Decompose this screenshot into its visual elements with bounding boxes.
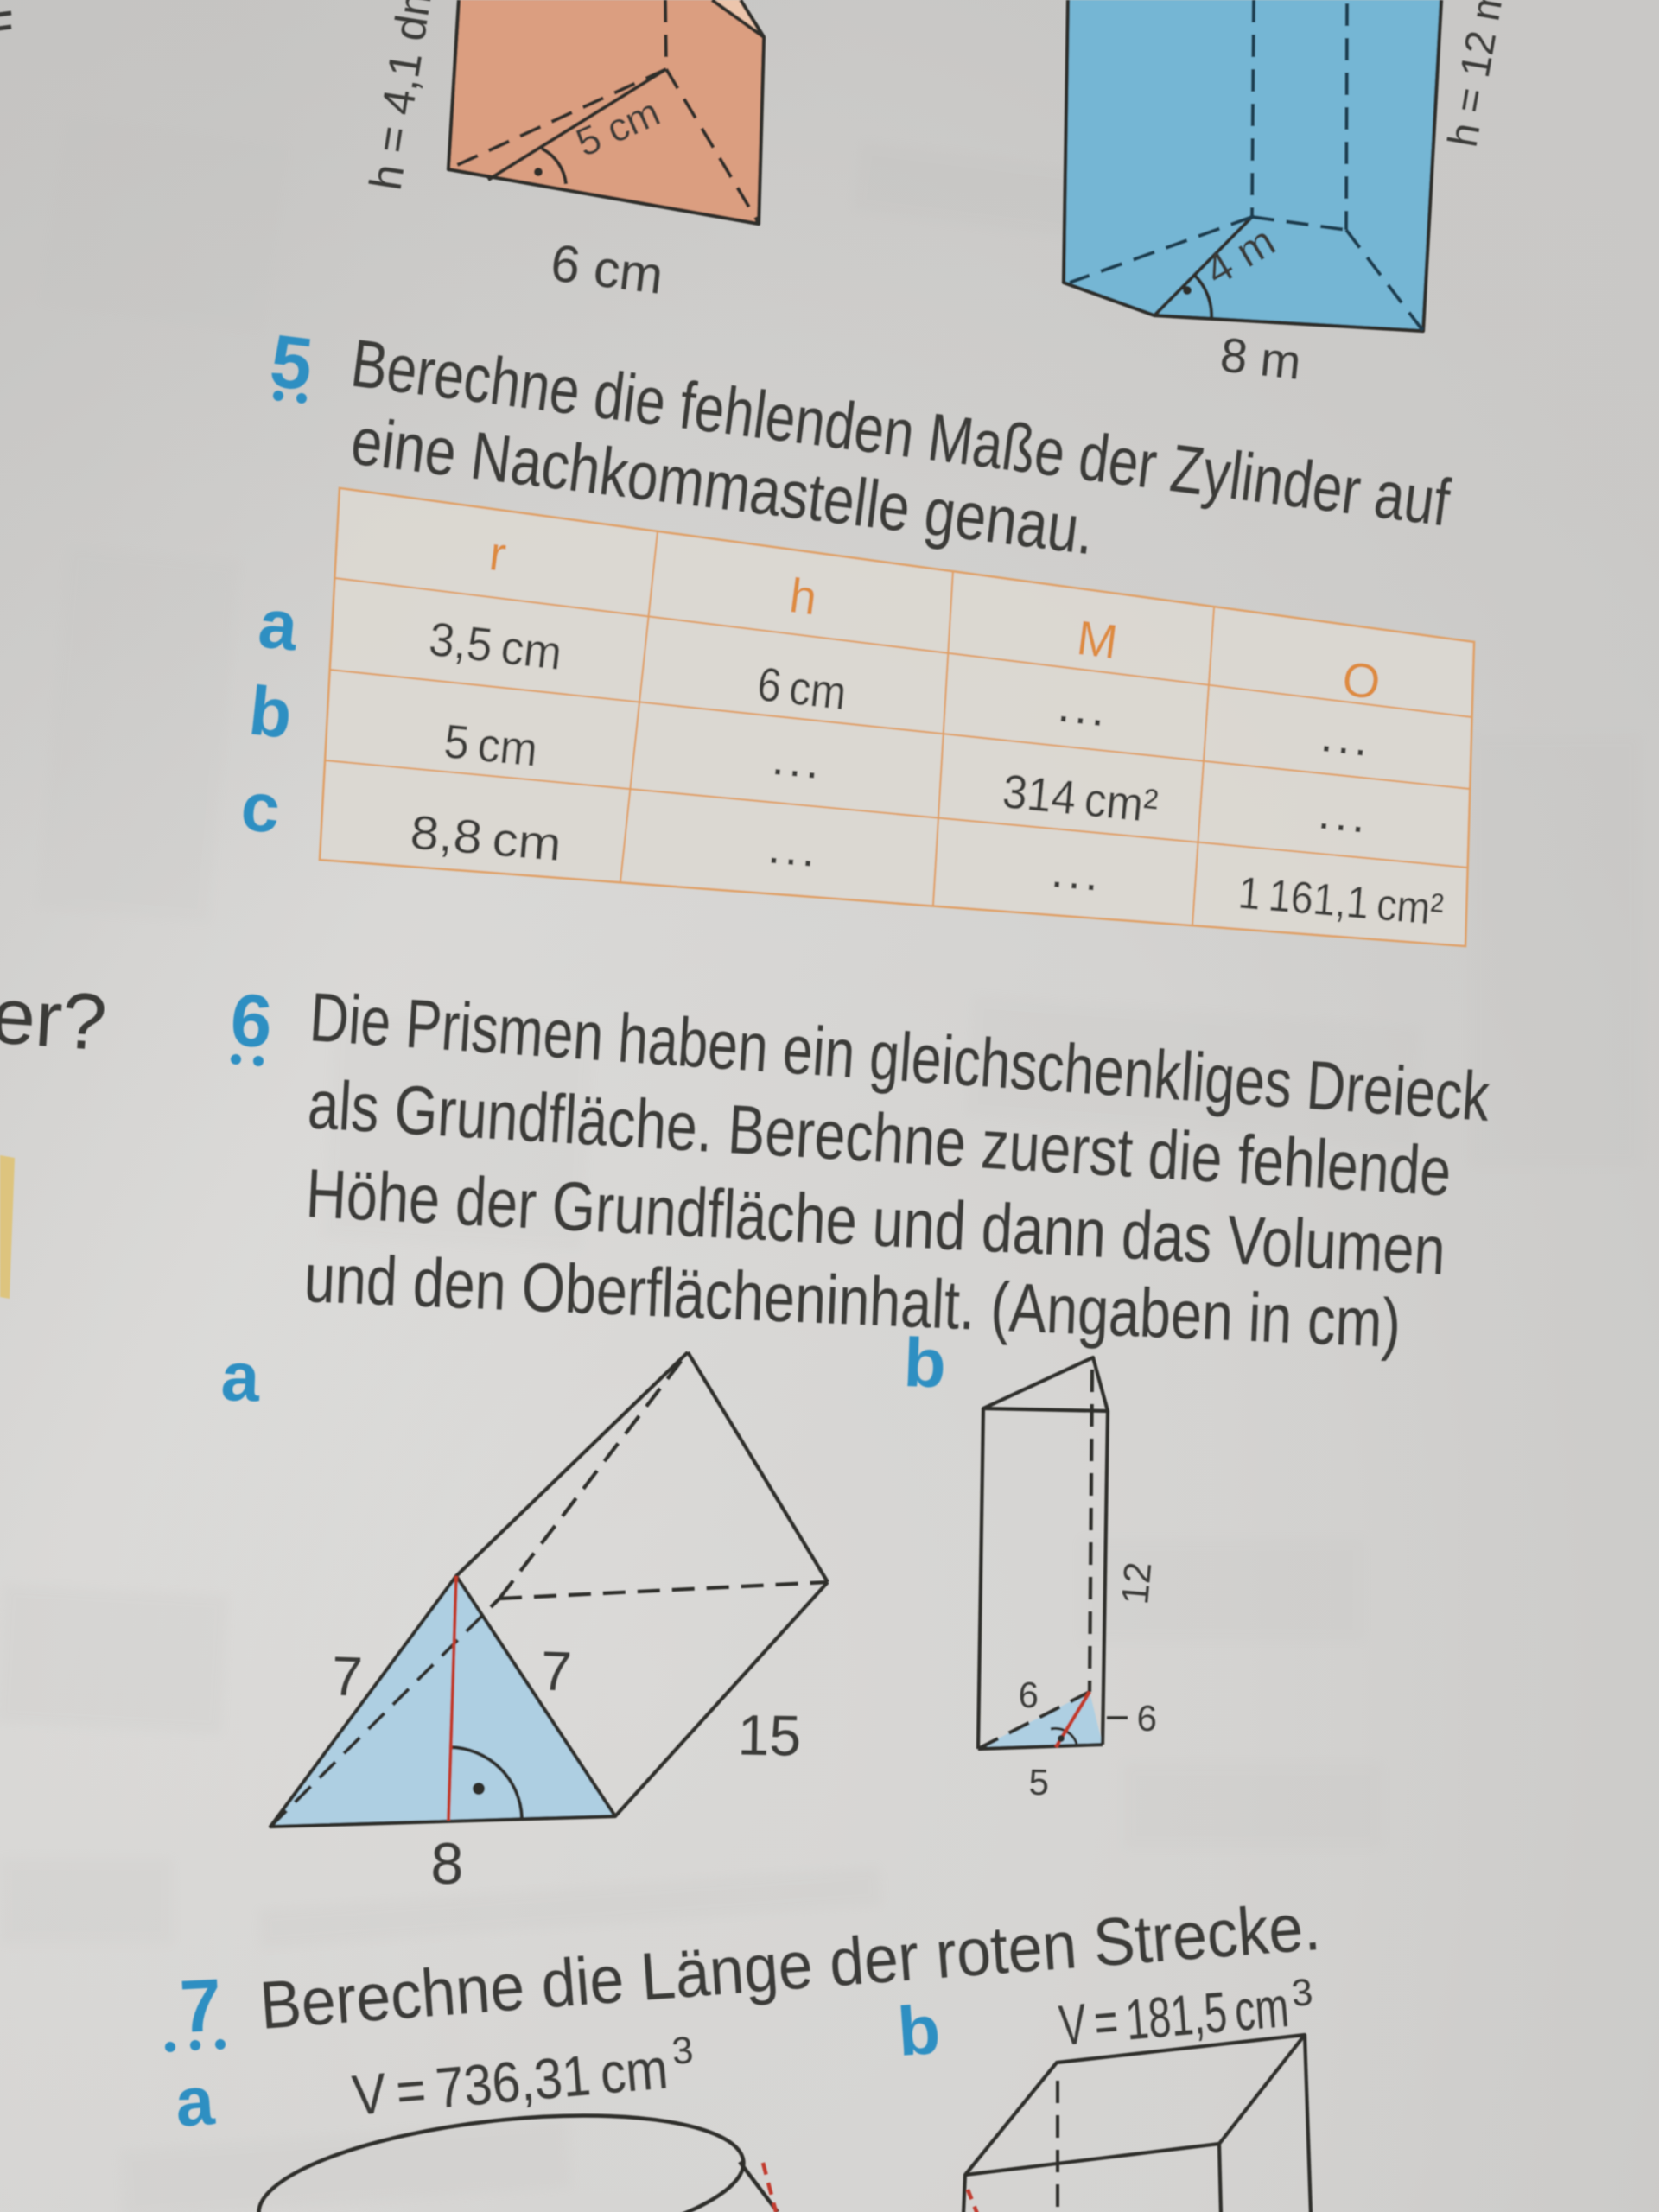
svg-text:5: 5: [1028, 1762, 1049, 1802]
svg-text:b: b: [895, 1991, 943, 2070]
svg-text:15: 15: [737, 1702, 802, 1767]
svg-text:...: ...: [1316, 785, 1373, 845]
svg-text:a: a: [219, 1338, 261, 1416]
svg-text:8: 8: [430, 1831, 464, 1897]
svg-text:b: b: [902, 1324, 947, 1402]
svg-text:...: ...: [766, 818, 822, 878]
svg-text:er?: er?: [0, 971, 109, 1067]
svg-text:6: 6: [1136, 1698, 1157, 1738]
svg-text:a: a: [173, 2062, 217, 2141]
svg-text:6: 6: [1018, 1675, 1039, 1715]
svg-text:8 m: 8 m: [1217, 327, 1303, 389]
svg-text:3: 3: [671, 2029, 696, 2073]
svg-text:6 cm: 6 cm: [754, 657, 849, 720]
svg-text:5 cm: 5 cm: [442, 714, 540, 776]
svg-text:7: 7: [331, 1644, 364, 1707]
svg-text:M: M: [1074, 610, 1121, 669]
svg-text:7: 7: [540, 1639, 573, 1702]
svg-text:...: ...: [1318, 707, 1375, 767]
svg-text:...: ...: [1049, 842, 1105, 902]
svg-text:c: c: [238, 767, 283, 848]
svg-text:b: b: [245, 671, 296, 753]
svg-text:O: O: [1339, 651, 1383, 709]
svg-text:...: ...: [1055, 677, 1112, 737]
svg-text:7: 7: [178, 1964, 224, 2049]
svg-text:3: 3: [1290, 1971, 1314, 2015]
svg-text:...: ...: [770, 730, 827, 791]
svg-text:6: 6: [228, 978, 275, 1064]
svg-text:12: 12: [1114, 1560, 1160, 1606]
